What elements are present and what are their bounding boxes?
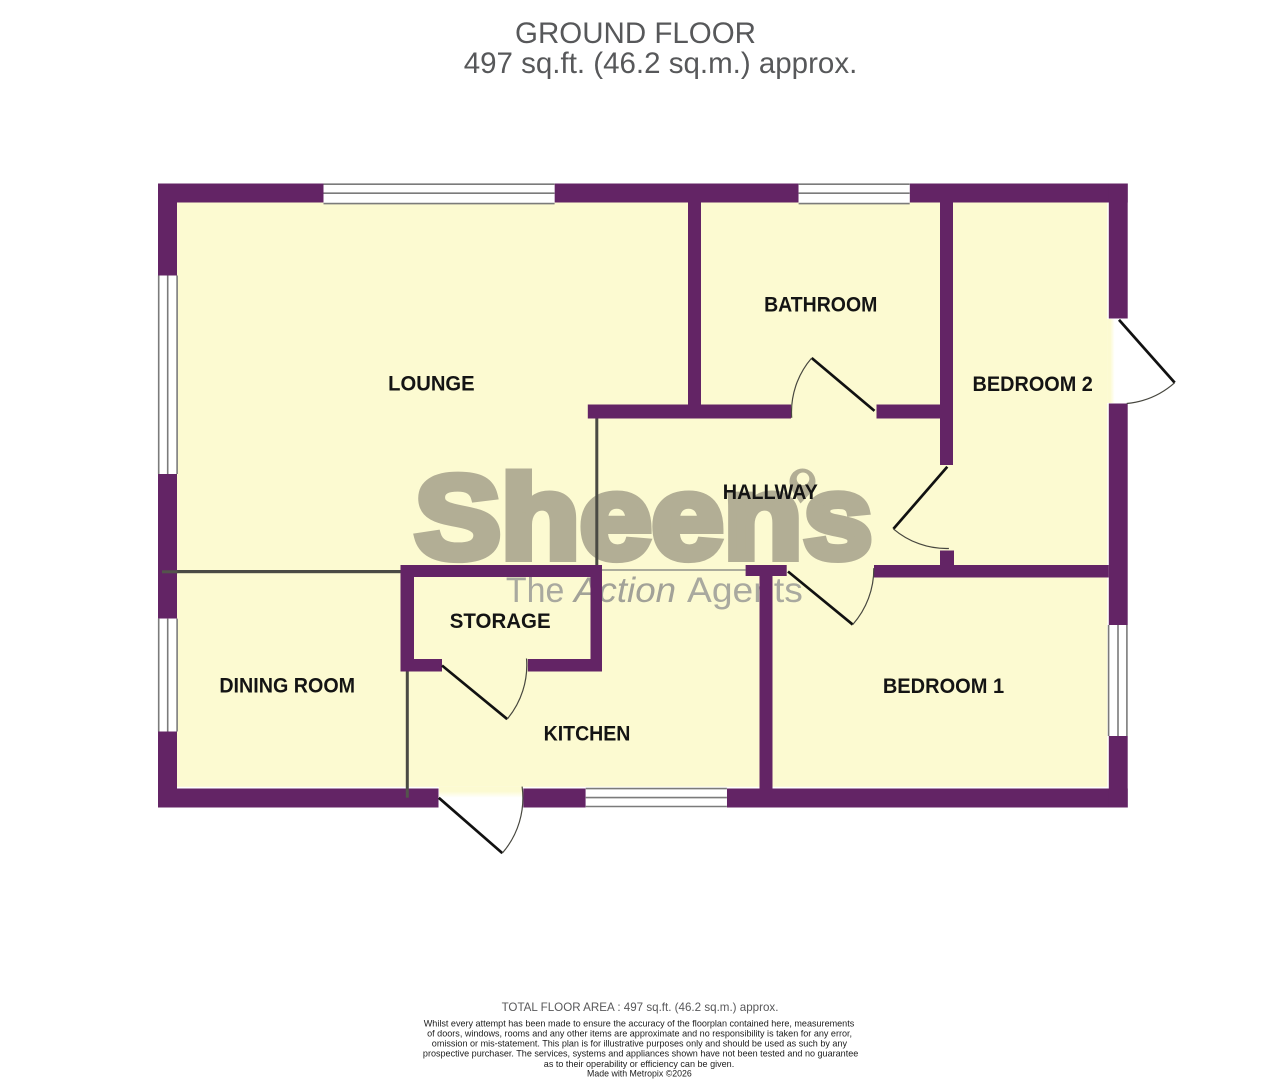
- svg-text:prospective purchaser. The ser: prospective purchaser. The services, sys…: [423, 1049, 858, 1059]
- svg-text:Sheen: Sheen: [415, 452, 803, 584]
- svg-text:KITCHEN: KITCHEN: [544, 723, 631, 746]
- svg-text:GROUND FLOOR: GROUND FLOOR: [515, 17, 756, 50]
- svg-text:BEDROOM 2: BEDROOM 2: [973, 372, 1093, 396]
- svg-text:STORAGE: STORAGE: [450, 610, 551, 633]
- svg-text:TOTAL FLOOR AREA : 497 sq.ft.: TOTAL FLOOR AREA : 497 sq.ft. (46.2 sq.m…: [502, 1001, 779, 1014]
- svg-text:BEDROOM 1: BEDROOM 1: [883, 674, 1004, 698]
- svg-text:Made with Metropix ©2026: Made with Metropix ©2026: [587, 1069, 692, 1079]
- svg-text:LOUNGE: LOUNGE: [388, 372, 474, 395]
- svg-text:497 sq.ft. (46.2 sq.m.) approx: 497 sq.ft. (46.2 sq.m.) approx.: [464, 47, 858, 80]
- svg-text:of doors, windows, rooms and a: of doors, windows, rooms and any other i…: [427, 1029, 852, 1039]
- svg-text:s: s: [804, 451, 873, 584]
- svg-text:DINING ROOM: DINING ROOM: [219, 675, 355, 698]
- svg-text:omission or mis-statement. Thi: omission or mis-statement. This plan is …: [432, 1039, 848, 1049]
- svg-text:Whilst every attempt has been: Whilst every attempt has been made to en…: [424, 1018, 855, 1028]
- svg-text:as to their operability or eff: as to their operability or efficiency ca…: [544, 1059, 734, 1069]
- svg-text:BATHROOM: BATHROOM: [764, 294, 877, 317]
- svg-text:HALLWAY: HALLWAY: [723, 482, 818, 505]
